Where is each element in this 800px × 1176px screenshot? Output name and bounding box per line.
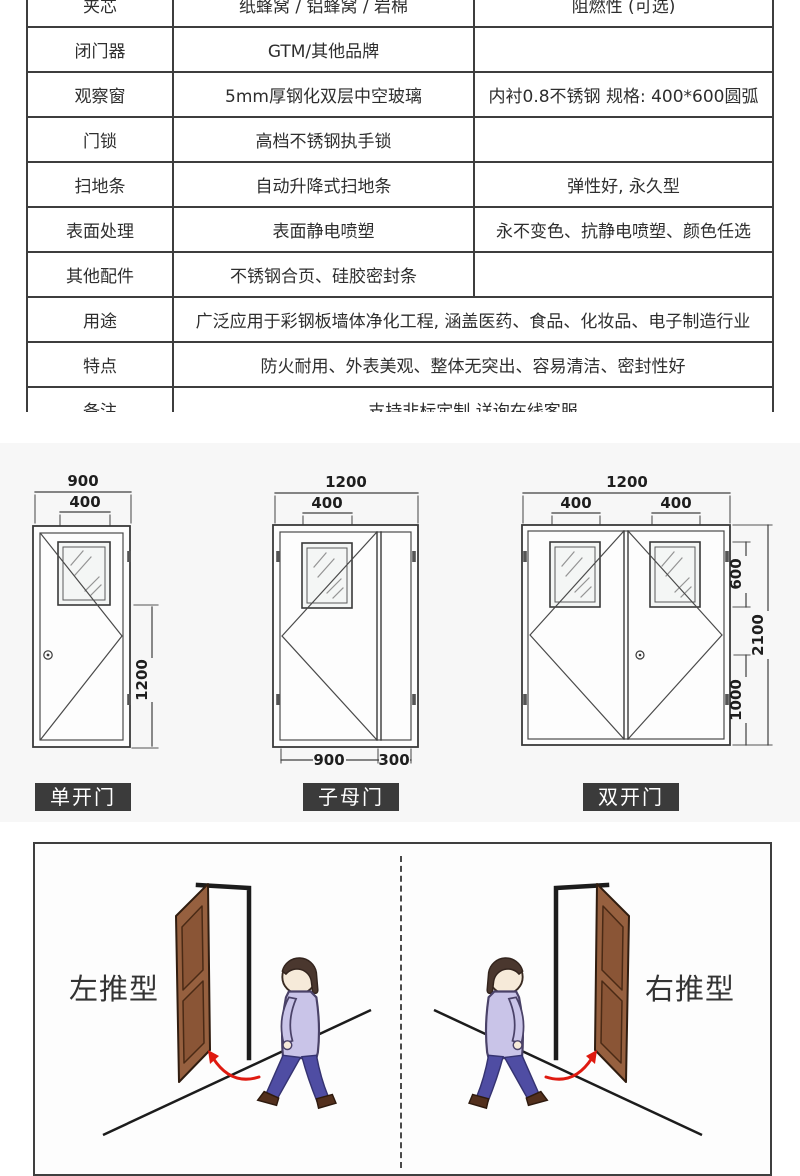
- dashed-divider: [400, 856, 402, 1168]
- table-row: 表面处理 表面静电喷塑 永不变色、抗静电喷塑、颜色任选: [27, 207, 773, 252]
- row-value: 永不变色、抗静电喷塑、颜色任选: [474, 207, 773, 252]
- hinge-mark: [412, 694, 416, 705]
- double-door-badge: 双开门: [583, 783, 679, 811]
- dim-label-dd-left-window: 400: [560, 494, 591, 512]
- hinge-mark: [412, 551, 416, 562]
- row-label: 特点: [27, 342, 173, 387]
- row-value: 高档不锈钢执手锁: [173, 117, 474, 162]
- table-row: 其他配件 不锈钢合页、硅胶密封条: [27, 252, 773, 297]
- mother-child-door-drawing: 1200 400 900 300: [273, 473, 418, 769]
- row-value: GTM/其他品牌: [173, 27, 474, 72]
- left-push-scene: [103, 884, 371, 1135]
- row-label: 门锁: [27, 117, 173, 162]
- row-value: 防火耐用、外表美观、整体无突出、容易清洁、密封性好: [173, 342, 773, 387]
- row-value: [474, 117, 773, 162]
- hinge-mark: [276, 694, 280, 705]
- dim-label-dd-lower-height: 1000: [727, 679, 745, 721]
- double-door-drawing: 1200 400 400: [522, 473, 772, 745]
- dim-label-single-window: 400: [69, 493, 100, 511]
- dim-label-mc-window: 400: [311, 494, 342, 512]
- row-value: 内衬0.8不锈钢 规格: 400*600圆弧: [474, 72, 773, 117]
- row-value: 弹性好, 永久型: [474, 162, 773, 207]
- door-diagrams-section: 900 400 1200: [0, 443, 800, 822]
- dim-label-dd-width: 1200: [606, 473, 648, 491]
- row-value: 阻燃性 (可选): [474, 0, 773, 27]
- table-row: 门锁 高档不锈钢执手锁: [27, 117, 773, 162]
- dim-label-dd-total-height: 2100: [749, 614, 767, 656]
- row-value: 自动升降式扫地条: [173, 162, 474, 207]
- single-door-drawing: 900 400 1200: [33, 472, 160, 748]
- row-label: 备注: [27, 387, 173, 412]
- right-push-scene: [434, 884, 702, 1135]
- dim-label-dd-right-window: 400: [660, 494, 691, 512]
- row-value: 表面静电喷塑: [173, 207, 474, 252]
- row-value: 广泛应用于彩钢板墙体净化工程, 涵盖医药、食品、化妆品、电子制造行业: [173, 297, 773, 342]
- row-label: 夹芯: [27, 0, 173, 27]
- row-value: 5mm厚钢化双层中空玻璃: [173, 72, 474, 117]
- row-label: 扫地条: [27, 162, 173, 207]
- table-row: 闭门器 GTM/其他品牌: [27, 27, 773, 72]
- table-row: 特点 防火耐用、外表美观、整体无突出、容易清洁、密封性好: [27, 342, 773, 387]
- row-label: 观察窗: [27, 72, 173, 117]
- hinge-mark: [523, 551, 527, 562]
- row-label: 表面处理: [27, 207, 173, 252]
- row-label: 其他配件: [27, 252, 173, 297]
- row-value: 纸蜂窝 / 铝蜂窝 / 岩棉: [173, 0, 474, 27]
- spec-table-section: 夹芯 纸蜂窝 / 铝蜂窝 / 岩棉 阻燃性 (可选) 闭门器 GTM/其他品牌 …: [26, 0, 774, 412]
- table-row: 观察窗 5mm厚钢化双层中空玻璃 内衬0.8不锈钢 规格: 400*600圆弧: [27, 72, 773, 117]
- table-row: 备注 支持非标定制 详询在线客服: [27, 387, 773, 412]
- table-row: 扫地条 自动升降式扫地条 弹性好, 永久型: [27, 162, 773, 207]
- dim-label-mc-main-leaf: 900: [313, 751, 344, 769]
- row-value: 不锈钢合页、硅胶密封条: [173, 252, 474, 297]
- dim-label-mc-small-leaf: 300: [378, 751, 409, 769]
- swing-illustrations: [35, 844, 770, 1174]
- dim-label-dd-window-height: 600: [727, 558, 745, 589]
- dim-label-single-height: 1200: [133, 659, 151, 701]
- mother-child-door-badge: 子母门: [303, 783, 399, 811]
- hinge-mark: [127, 551, 131, 562]
- row-value: 支持非标定制 详询在线客服: [173, 387, 773, 412]
- table-row: 用途 广泛应用于彩钢板墙体净化工程, 涵盖医药、食品、化妆品、电子制造行业: [27, 297, 773, 342]
- row-value: [474, 252, 773, 297]
- table-row: 夹芯 纸蜂窝 / 铝蜂窝 / 岩棉 阻燃性 (可选): [27, 0, 773, 27]
- left-push-label: 左推型: [69, 966, 159, 1008]
- swing-direction-section: 左推型 右推型: [33, 842, 772, 1176]
- single-door-badge: 单开门: [35, 783, 131, 811]
- row-label: 用途: [27, 297, 173, 342]
- hinge-mark: [523, 694, 527, 705]
- door-diagrams-drawing: 900 400 1200: [0, 443, 800, 822]
- hinge-mark: [127, 694, 131, 705]
- row-value: [474, 27, 773, 72]
- dim-label-mc-width: 1200: [325, 473, 367, 491]
- dim-label-single-width: 900: [67, 472, 98, 490]
- right-push-label: 右推型: [645, 966, 735, 1008]
- spec-table: 夹芯 纸蜂窝 / 铝蜂窝 / 岩棉 阻燃性 (可选) 闭门器 GTM/其他品牌 …: [26, 0, 774, 412]
- hinge-mark: [276, 551, 280, 562]
- row-label: 闭门器: [27, 27, 173, 72]
